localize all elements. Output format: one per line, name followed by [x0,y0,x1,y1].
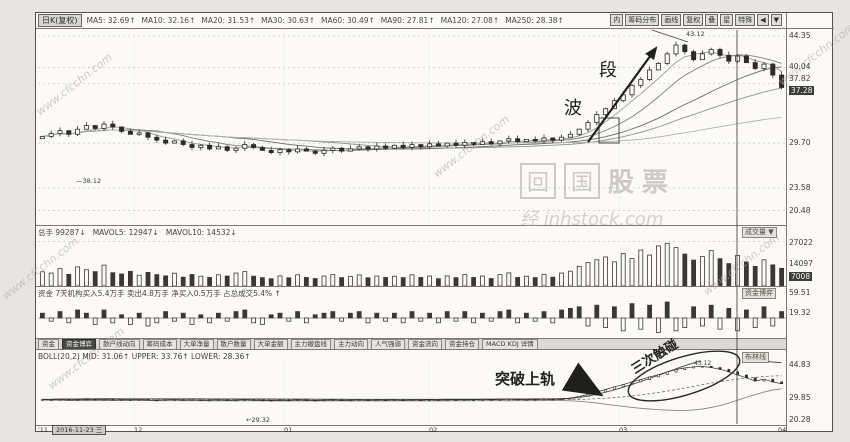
month-tick-02: 02 [429,426,437,434]
mavol5: MAVOL5: 12947↓ [93,228,159,237]
boll-level-label: ←29.32 [246,416,270,424]
tab-3[interactable]: 筹码成本 [143,339,177,350]
fund-panel-title: 资金 7天机构买入5.4万手 卖出4.8万手 净买入0.5万手 占总成交5.4%… [38,288,281,299]
axis-tick-label: 40.04 [789,63,810,71]
scanned-stock-chart-page: www.cfcchn.com www.cfcchn.com www.cfcchn… [0,0,850,442]
axis-tick-label: 29.85 [789,394,810,402]
chart-frame: 日K(复权) MA5: 32.69↑MA10: 32.16↑MA20: 31.5… [35,12,833,432]
current-value-box: 37.28 [789,86,814,95]
axis-tick-label: 59.51 [789,289,810,297]
period-selector[interactable]: 日K(复权) [38,14,82,27]
toolbar-button-4[interactable]: 叠 [705,14,718,26]
axis-tick-label: 29.70 [789,139,810,147]
panel-divider [36,286,786,287]
tab-7[interactable]: 主力撤盘线 [291,339,332,350]
axis-tick-label: 14097 [789,260,813,268]
volume-plot[interactable] [38,241,786,286]
axis-tick-label: 20.48 [789,207,810,215]
ma-value: MA250: 28.38↑ [505,16,564,25]
watermark-brand: 回 国 股票 经 inhstock.com [520,162,676,231]
axis-tick-label: 23.58 [789,184,810,192]
month-tick-12: 12 [134,426,142,434]
month-tick-03: 03 [619,426,627,434]
ma-value: MA20: 31.53↑ [201,16,255,25]
volume-panel-title: 总手 99287↓ MAVOL5: 12947↓ MAVOL10: 14532↓ [38,227,237,238]
brand-url-text: 经 inhstock.com [520,205,676,231]
boll-peak-label: 43.12 [694,360,711,367]
axis-tick-label: 37.82 [789,75,810,83]
volume-panel-selector[interactable]: 成交量 ▼ [742,227,777,238]
main-level-label: —38.12 [76,177,101,185]
axis-tick-label: 44.35 [789,32,810,40]
brand-logo-box: 回 [520,163,556,199]
tab-0[interactable]: 资金 [38,339,59,350]
ma-value: MA90: 27.81↑ [381,16,435,25]
annotation-bo: 波 [564,94,582,120]
axis-tick-label: 44.83 [789,361,810,369]
brand-stock-text: 股票 [608,162,676,199]
annotation-duan: 段 [599,56,617,82]
tab-8[interactable]: 主力动向 [334,339,368,350]
axis-tick-label: 20.28 [789,416,810,424]
ma-value: MA120: 27.08↑ [441,16,500,25]
volume-total: 总手 99287↓ [38,228,86,237]
tab-10[interactable]: 资金流向 [408,339,442,350]
mavol10: MAVOL10: 14532↓ [166,228,237,237]
toolbar-button-5[interactable]: 星 [720,14,733,26]
toolbar-button-6[interactable]: 特殊 [735,14,755,26]
ma-value: MA60: 30.49↑ [321,16,375,25]
brand-logo-box: 国 [564,163,600,199]
tab-9[interactable]: 人气强弱 [371,339,405,350]
tab-6[interactable]: 大单金额 [254,339,288,350]
date-axis: '11 2016-11-23 三 1201020304 [36,426,834,433]
tab-12[interactable]: MACD KDJ 详情 [482,339,538,350]
ma-value: MA5: 32.69↑ [87,16,136,25]
toolbar-button-2[interactable]: 画线 [661,14,681,26]
ma-values-row: MA5: 32.69↑MA10: 32.16↑MA20: 31.53↑MA30:… [87,16,570,25]
ma-value: MA30: 30.63↑ [261,16,315,25]
current-date-box: 2016-11-23 三 [52,425,106,435]
toolbar-button-7[interactable]: ◀ [757,14,768,26]
boll-panel-title: BOLL(20,2) MID: 31.06↑ UPPER: 33.76↑ LOW… [38,352,251,361]
chart-toolbar: 内筹码分布画线复权叠星特殊◀▼ [610,14,782,26]
boll-plot[interactable] [38,361,786,425]
current-value-box: 7008 [789,272,812,281]
boll-panel-selector[interactable]: 布林线 [742,352,769,363]
toolbar-button-1[interactable]: 筹码分布 [625,14,659,26]
toolbar-button-3[interactable]: 复权 [683,14,703,26]
tab-4[interactable]: 大单净量 [180,339,214,350]
axis-tick-label: 27022 [789,239,813,247]
toolbar-button-8[interactable]: ▼ [771,14,782,26]
month-tick-01: 01 [284,426,292,434]
ma-value: MA10: 32.16↑ [142,16,196,25]
fund-panel-selector[interactable]: 资金博弈 [742,288,776,299]
axis-tick-label: 19.32 [789,309,810,317]
tab-11[interactable]: 资金持仓 [445,339,479,350]
peak-price-label: 43.12 [686,30,705,38]
tab-5[interactable]: 散户数量 [217,339,251,350]
fund-flow-plot[interactable] [38,299,786,337]
annotation-breakout: 突破上轨 [495,368,555,389]
toolbar-button-0[interactable]: 内 [610,14,623,26]
year-label: '11 [38,426,48,434]
